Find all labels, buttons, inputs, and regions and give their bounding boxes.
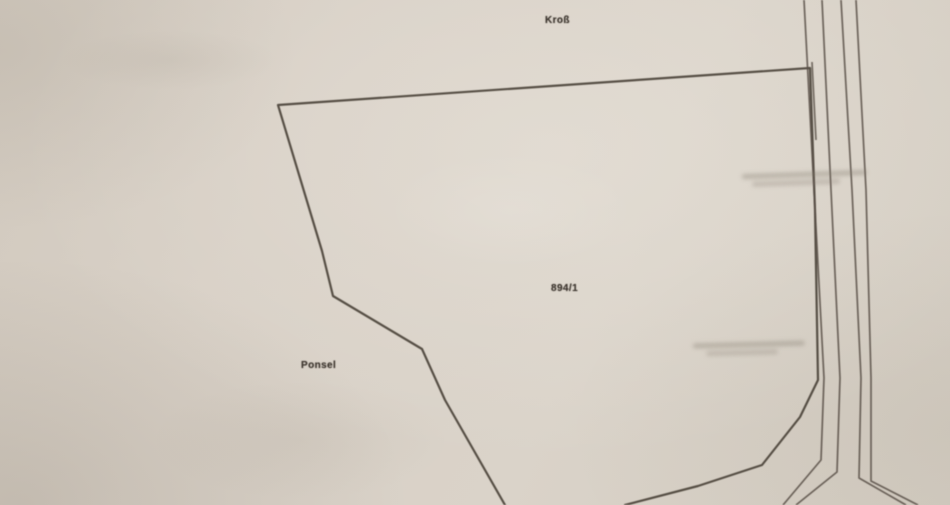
road-edge-line-3 bbox=[841, 0, 906, 505]
road-edge-line-4 bbox=[856, 0, 918, 505]
scanned-cadastral-map: Kroß 894/1 Ponsel bbox=[0, 0, 950, 505]
parcel-boundary bbox=[278, 68, 818, 505]
field-name-label-left: Ponsel bbox=[301, 360, 336, 371]
map-linework bbox=[0, 0, 950, 505]
field-name-label-top: Kroß bbox=[545, 15, 570, 26]
parcel-number-label: 894/1 bbox=[551, 283, 578, 294]
